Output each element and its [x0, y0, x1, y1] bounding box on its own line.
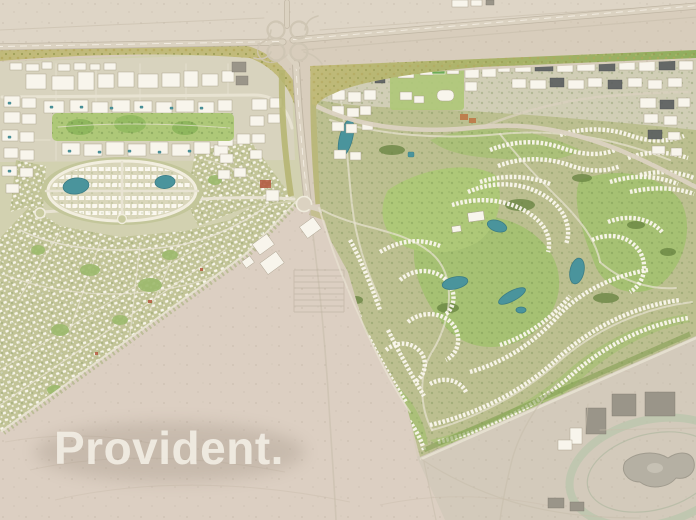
watermark-text: Provident. — [54, 422, 284, 474]
masterplan-image: Provident. — [0, 0, 696, 520]
linear-central-park — [52, 113, 234, 141]
masterplan-map: Provident. — [0, 0, 696, 520]
oval-lagoon-district — [41, 157, 203, 225]
pond-island — [647, 463, 663, 473]
watermark-logo: Provident. — [35, 422, 305, 482]
roundabout — [118, 215, 127, 224]
roundabout — [35, 208, 45, 218]
golf-clubhouse — [468, 211, 485, 222]
